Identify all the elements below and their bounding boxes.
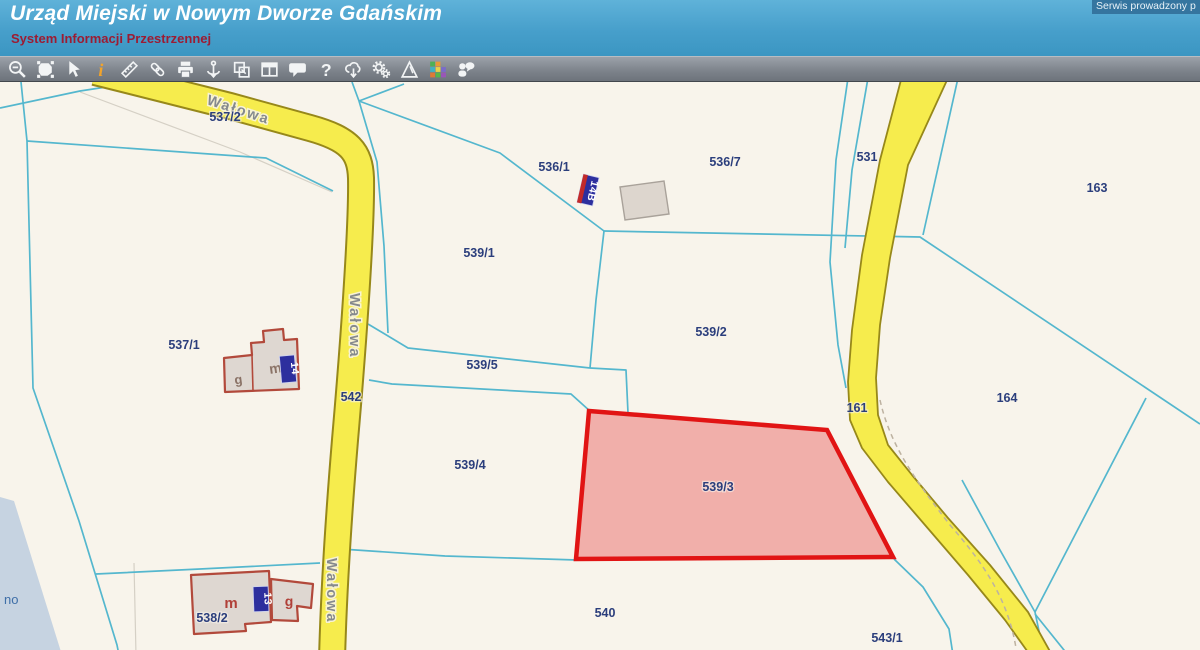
building-label: g [285, 593, 294, 609]
help-icon: ? [315, 59, 336, 80]
page-subtitle: System Informacji Przestrzennej [11, 31, 211, 46]
cloud-download-icon [343, 59, 364, 80]
polygon-select-icon [35, 59, 56, 80]
print-icon [175, 59, 196, 80]
legend-button[interactable] [423, 57, 451, 81]
layout-panels-icon [259, 59, 280, 80]
parcel-label: 539/3 [702, 480, 733, 494]
road-east [848, 82, 1052, 650]
parcel-label: 543/1 [871, 631, 902, 645]
street-label: Wałowa [323, 558, 339, 623]
address-plate-number: 14 [288, 362, 301, 376]
contact-button[interactable] [451, 57, 479, 81]
comments-button[interactable] [283, 57, 311, 81]
parcel-label: 540 [595, 606, 616, 620]
parcel-label: 539/1 [463, 246, 494, 260]
parcel-label: 164 [997, 391, 1018, 405]
map-canvas[interactable]: WałowaWałowaWałowa 537/2536/1536/7531163… [0, 82, 1200, 650]
measure-icon [119, 59, 140, 80]
service-note[interactable]: Serwis prowadzony p [1092, 0, 1200, 14]
parcel-label: 537/1 [168, 338, 199, 352]
color-grid-icon [427, 59, 448, 80]
print-button[interactable] [171, 57, 199, 81]
overlap-windows-icon [231, 59, 252, 80]
person-speech-icon [455, 59, 476, 80]
parcel-label: 161 [847, 401, 868, 415]
water-area [0, 497, 62, 650]
svg-text:?: ? [320, 59, 331, 79]
parcel-label: 531 [857, 150, 878, 164]
speech-bubble-icon [287, 59, 308, 80]
measure-button[interactable] [115, 57, 143, 81]
water-name-label: no [4, 592, 18, 607]
selected-parcel[interactable] [576, 411, 893, 559]
parcel-label: 537/2 [209, 110, 240, 124]
address-plate: 14B [577, 174, 602, 206]
info-icon: i [91, 59, 112, 80]
pyramid-icon [399, 59, 420, 80]
cursor-icon [63, 59, 84, 80]
parcel-label: 539/5 [466, 358, 497, 372]
street-label: Wałowa [346, 293, 362, 358]
parcel-label: 538/2 [196, 611, 227, 625]
anchor-icon [203, 59, 224, 80]
address-plate-number: 13 [261, 592, 273, 605]
info-button[interactable]: i [87, 57, 115, 81]
link-button[interactable] [143, 57, 171, 81]
water-label: no [4, 592, 18, 607]
overlap-windows-button[interactable] [227, 57, 255, 81]
parcel-label: 542 [341, 390, 362, 404]
building-label: m [224, 595, 237, 612]
parcel-label: 539/2 [695, 325, 726, 339]
parcel-label: 536/1 [538, 160, 569, 174]
parcel-label: 536/7 [709, 155, 740, 169]
scale-button[interactable] [395, 57, 423, 81]
pointer-button[interactable] [59, 57, 87, 81]
polygon-select-button[interactable] [31, 57, 59, 81]
building-plain [620, 181, 669, 220]
gis-application: Urząd Miejski w Nowym Dworze Gdańskim Sy… [0, 0, 1200, 650]
header: Urząd Miejski w Nowym Dworze Gdańskim Sy… [0, 0, 1200, 56]
link-icon [147, 59, 168, 80]
page-title: Urząd Miejski w Nowym Dworze Gdańskim [10, 2, 442, 26]
map-toolbar: i ? [0, 56, 1200, 82]
zoom-out-icon [7, 59, 28, 80]
svg-text:i: i [98, 59, 103, 79]
settings-button[interactable] [367, 57, 395, 81]
zoom-out-button[interactable] [3, 57, 31, 81]
cloud-download-button[interactable] [339, 57, 367, 81]
parcel-boundaries [0, 82, 1200, 650]
help-button[interactable]: ? [311, 57, 339, 81]
layout-panels-button[interactable] [255, 57, 283, 81]
map-viewport[interactable]: WałowaWałowaWałowa 537/2536/1536/7531163… [0, 82, 1200, 650]
anchor-button[interactable] [199, 57, 227, 81]
parcel-label: 539/4 [454, 458, 485, 472]
parcel-label: 163 [1087, 181, 1108, 195]
gears-icon [371, 59, 392, 80]
